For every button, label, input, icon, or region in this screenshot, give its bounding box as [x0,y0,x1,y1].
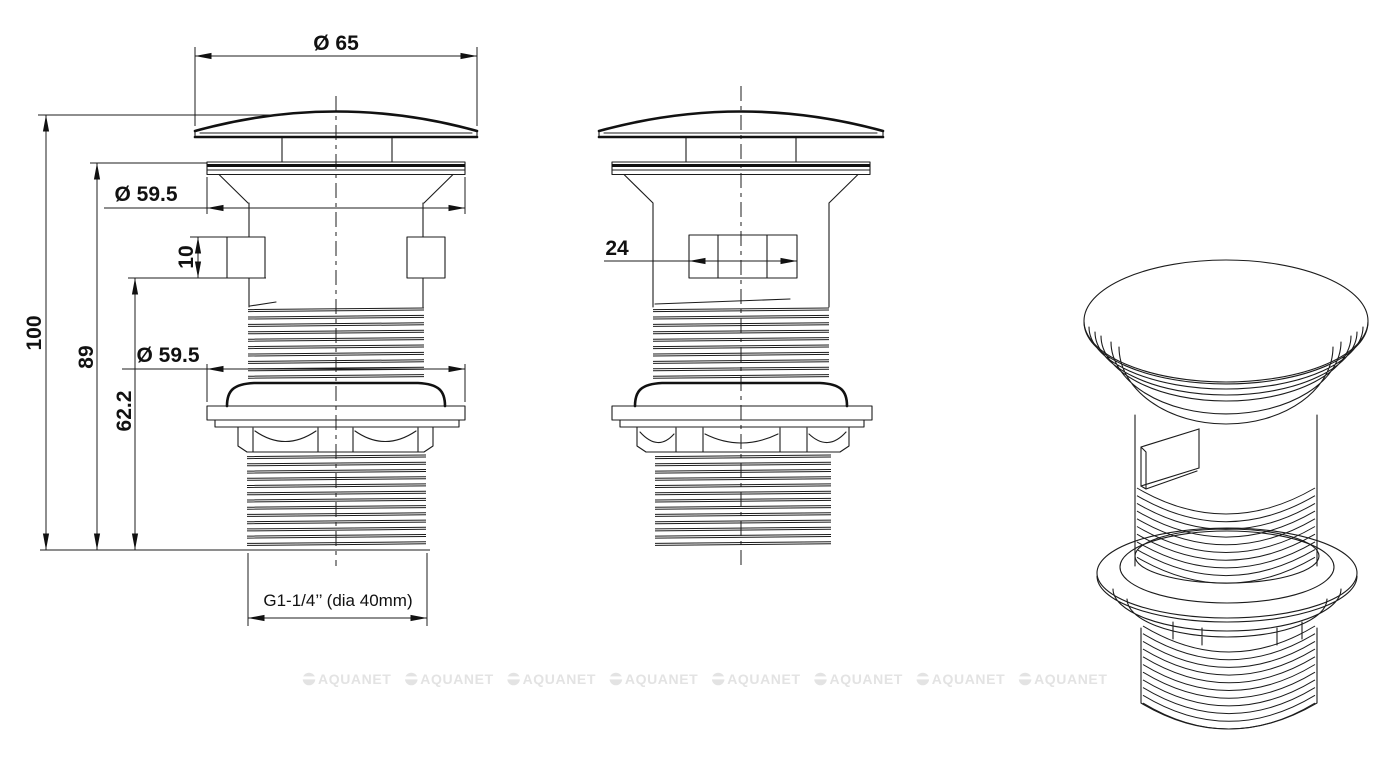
watermark-text: AQUANET [625,671,698,687]
aquanet-logo-slit [916,676,931,679]
left-section-view [195,96,477,566]
watermark: AQUANET [507,671,596,687]
dim-cap-diameter: Ø 65 [313,32,359,55]
cap-rim-rings [1084,322,1368,424]
aquanet-logo-slit [507,676,521,679]
aquanet-logo-slit [814,676,829,679]
flange-inner-rim [1120,531,1334,603]
watermark-text: AQUANET [727,671,800,687]
technical-drawing-page: Ø 65 Ø 59.5 10 Ø 59.5 62.2 89 100 24 G1-… [0,0,1400,766]
dim-thread-spec: G1-1/4’’ (dia 40mm) [263,591,412,610]
watermark-text: AQUANET [318,671,391,687]
aquanet-logo-slit [609,676,624,679]
dim-height-89: 89 [75,345,98,368]
watermark: AQUANET [711,671,800,687]
aquanet-logo-slit [302,676,317,679]
body-cylinder [1135,415,1317,566]
dim-height-62-2: 62.2 [113,391,136,432]
aquanet-logo-slit [404,676,419,679]
overflow-slot-window [1141,429,1199,489]
upper-thread-hatch [653,308,829,378]
watermark: AQUANET [404,671,493,687]
dim-height-100: 100 [23,315,46,350]
lower-thread-arcs [1143,626,1315,729]
watermark: AQUANET [1018,671,1107,687]
watermark: AQUANET [609,671,698,687]
watermark: AQUANET [814,671,903,687]
dimension-lines [46,56,797,618]
watermark-text: AQUANET [420,671,493,687]
extension-lines [38,47,689,626]
dim-slot-width: 24 [605,237,629,260]
drain-valve-technical-drawing: Ø 65 Ø 59.5 10 Ø 59.5 62.2 89 100 24 G1-… [0,0,1400,766]
watermark-text: AQUANET [523,671,596,687]
upper-thread-hatch [248,308,424,378]
aquanet-logo-slit [1018,676,1033,679]
watermark: AQUANET [302,671,391,687]
watermark-text: AQUANET [932,671,1005,687]
watermark-text: AQUANET [830,671,903,687]
dim-notch-height: 10 [175,245,198,268]
watermark: AQUANET [916,671,1005,687]
watermark-text: AQUANET [1034,671,1107,687]
aquanet-logo-slit [711,676,726,679]
flange-outer-rim [1097,528,1357,618]
cap-top-face [1084,260,1368,382]
middle-front-view [599,86,883,566]
dim-flange-diameter-top: Ø 59.5 [114,183,177,206]
watermark-row: AQUANETAQUANETAQUANETAQUANETAQUANETAQUAN… [302,671,1108,687]
dim-flange-diameter-lower: Ø 59.5 [136,344,199,367]
right-3d-view [1084,260,1368,729]
lower-thread-hatch [655,455,831,545]
